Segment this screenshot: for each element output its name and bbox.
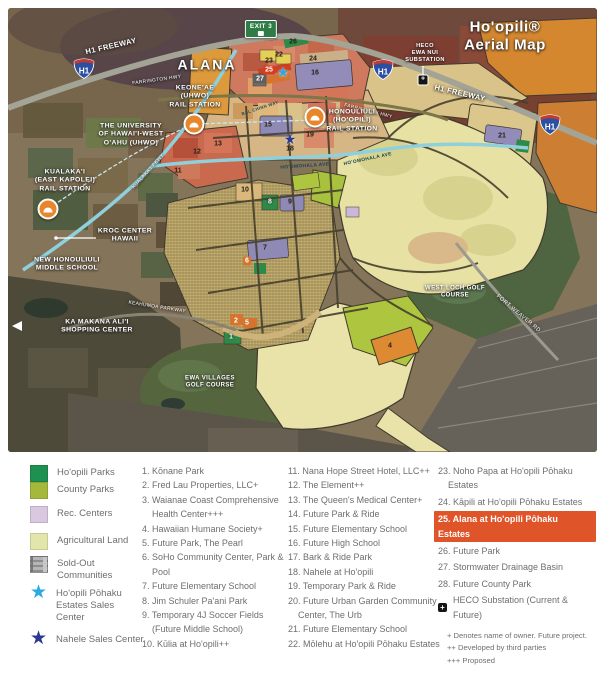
- new-honouliuli-middle-school-label: NEW HONOULIULI MIDDLE SCHOOL: [34, 257, 100, 274]
- list-item: 2. Fred Lau Properties, LLC+: [142, 478, 290, 492]
- aerial-map: ★★H1H1H1+ 262223252724162115191813121110…: [8, 8, 597, 452]
- list-item: 22. Mōlehu at Ho'opili Pōhaku Estates: [288, 637, 440, 651]
- hoomohala-ave-label-2: HO'OMOHALA AVE: [343, 152, 392, 168]
- west-loch-golf-label: WEST LOCH GOLF COURSE: [425, 286, 485, 301]
- list-item: 9. Temporary 4J Soccer Fields (Future Mi…: [142, 608, 290, 637]
- color-swatch: [30, 482, 48, 499]
- list-item: 17. Bark & Ride Park: [288, 550, 440, 564]
- heco-ewa-nui-substation-label: HECO EWA NUI SUBSTATION: [405, 43, 445, 63]
- poi-list-col-1: 1. Kōnane Park2. Fred Lau Properties, LL…: [142, 464, 290, 651]
- legend-item-label: Sold-Out Communities: [57, 556, 145, 582]
- list-item: 20. Future Urban Garden Community Center…: [288, 594, 440, 623]
- kualakai-pkwy-label: KUALAKA'I PKWY: [132, 153, 167, 191]
- legend-item-7: ★Nahele Sales Center: [30, 632, 144, 646]
- hoomohala-ave-label: HO'OMOHALA AVE: [280, 162, 329, 171]
- list-item-highlighted: 25. Alana at Ho'opili Pōhaku Estates: [434, 511, 596, 542]
- footnote: + Denotes name of owner. Future project.: [447, 630, 596, 643]
- list-item: 16. Future High School: [288, 536, 440, 550]
- list-item: 7. Future Elementary School: [142, 579, 290, 593]
- legend-item-5: Sold-Out Communities: [30, 556, 145, 582]
- color-swatch: [30, 533, 48, 550]
- map-title: Ho'opili® Aerial Map: [459, 19, 551, 56]
- footnote: +++ Proposed: [447, 655, 596, 668]
- sales-center-star-icon: ★: [30, 586, 47, 600]
- honouliuli-rail-station-label: HONOULIULI (HO'OPILI) RAIL STATION: [326, 109, 377, 134]
- bal-chinn-way-label: BAL CHINN WAY: [241, 100, 279, 117]
- list-item: 12. The Element++: [288, 478, 440, 492]
- exit-sign-pictogram: [258, 31, 264, 36]
- legend-item-2: County Parks: [30, 482, 114, 499]
- exit-sign-text: EXIT 3: [250, 23, 272, 30]
- h1-freeway-west-label: H1 FREEWAY: [85, 36, 138, 57]
- list-item: 3. Waianae Coast Comprehensive Health Ce…: [142, 493, 290, 522]
- list-item: 4. Hawaiian Humane Society+: [142, 522, 290, 536]
- legend-item-label: Agricultural Land: [57, 533, 128, 547]
- legend-item-4: Agricultural Land: [30, 533, 128, 550]
- color-swatch: [30, 465, 48, 482]
- legend-item-3: Rec. Centers: [30, 506, 112, 523]
- kroc-center-label: KROC CENTER HAWAII: [98, 228, 152, 245]
- fort-weaver-rd-label: FORT WEAVER RD: [494, 294, 541, 335]
- list-item: 10. Kūlia at Ho'opili++: [142, 637, 290, 651]
- sold-out-plaid-swatch: [30, 556, 48, 573]
- page: { "title": "Ho'opili® Aerial Map", "map"…: [0, 0, 605, 673]
- uhwo-university-label: THE UNIVERSITY OF HAWAI'I-WEST O'AHU (UH…: [98, 123, 163, 148]
- footnotes: + Denotes name of owner. Future project.…: [438, 630, 596, 668]
- list-item: 24. Kāpili at Ho'opili Pōhaku Estates: [438, 495, 596, 509]
- legend-item-label: Nahele Sales Center: [56, 632, 144, 646]
- legend-item-6: ★Ho'opili Pōhaku Estates Sales Center: [30, 586, 145, 624]
- list-item: 8. Jim Schuler Pa'ani Park: [142, 594, 290, 608]
- footnote: ++ Developed by third parties: [447, 642, 596, 655]
- ka-makana-alii-label: KA MAKANA ALI'I SHOPPING CENTER: [61, 319, 133, 336]
- kualakai-rail-station-label: KUALAKA'I (EAST KAPOLEI) RAIL STATION: [35, 169, 95, 194]
- list-item: 21. Future Elementary School: [288, 622, 440, 636]
- list-item: 6. SoHo Community Center, Park & Pool: [142, 550, 290, 579]
- exit-sign: EXIT 3: [245, 20, 277, 38]
- h1-freeway-east-label: H1 FREEWAY: [434, 83, 487, 104]
- alana-area-label: ALANA: [178, 56, 237, 73]
- list-item: 1. Kōnane Park: [142, 464, 290, 478]
- legend-item-label: Ho'opili Parks: [57, 465, 115, 479]
- map-labels-layer: Ho'opili® Aerial MapALANAH1 FREEWAYH1 FR…: [8, 8, 597, 452]
- heco-substation-icon: +: [438, 603, 447, 612]
- poi-list-col-3: 23. Noho Papa at Ho'opili Pōhaku Estates…: [438, 464, 596, 667]
- list-item: 15. Future Elementary School: [288, 522, 440, 536]
- list-item: 5. Future Park, The Pearl: [142, 536, 290, 550]
- list-item: 11. Nana Hope Street Hotel, LLC++: [288, 464, 440, 478]
- list-item: 27. Stormwater Drainage Basin: [438, 560, 596, 574]
- ewa-villages-golf-label: EWA VILLAGES GOLF COURSE: [185, 376, 235, 391]
- heco-legend-label: HECO Substation (Current & Future): [453, 593, 596, 622]
- legend-item-1: Ho'opili Parks: [30, 465, 115, 482]
- list-item: 26. Future Park: [438, 544, 596, 558]
- legend-item-label: Ho'opili Pōhaku Estates Sales Center: [56, 586, 145, 624]
- list-item: 23. Noho Papa at Ho'opili Pōhaku Estates: [438, 464, 596, 493]
- poi-list-col-2: 11. Nana Hope Street Hotel, LLC++12. The…: [288, 464, 440, 651]
- legend-item-label: County Parks: [57, 482, 114, 496]
- legend-item-label: Rec. Centers: [57, 506, 112, 520]
- list-item: 19. Temporary Park & Ride: [288, 579, 440, 593]
- heco-legend-row: +HECO Substation (Current & Future): [438, 593, 596, 622]
- keoneae-rail-station-label: KEONE'AE (UHWO) RAIL STATION: [169, 85, 220, 110]
- sales-center-star-icon: ★: [30, 632, 47, 646]
- list-item: 28. Future County Park: [438, 577, 596, 591]
- keahumoa-parkway-label: KEAHUMOA PARKWAY: [128, 301, 186, 316]
- color-swatch: [30, 506, 48, 523]
- list-item: 14. Future Park & Ride: [288, 507, 440, 521]
- list-item: 13. The Queen's Medical Center+: [288, 493, 440, 507]
- list-item: 18. Nahele at Ho'opili: [288, 565, 440, 579]
